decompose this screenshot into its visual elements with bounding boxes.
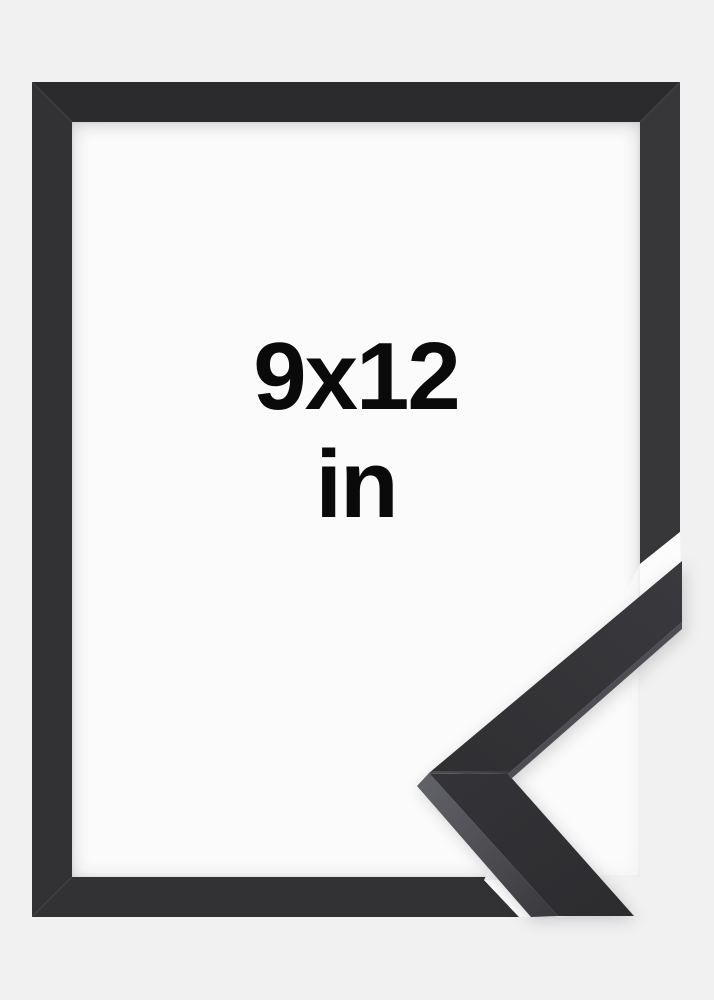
- product-photo-stage: 9x12 in: [0, 0, 714, 1000]
